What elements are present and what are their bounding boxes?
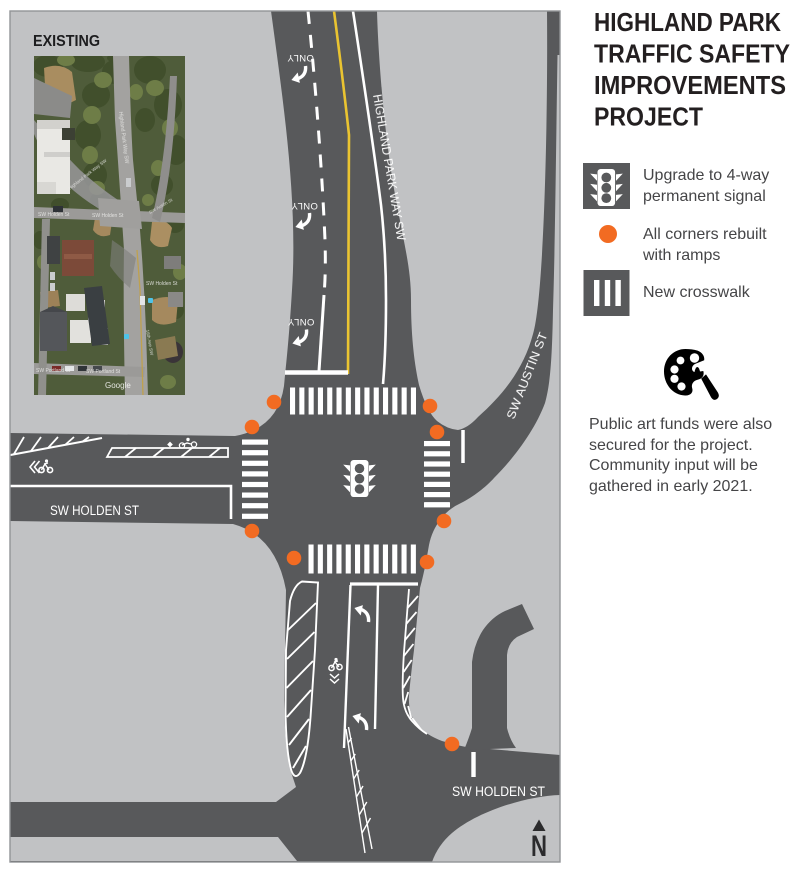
svg-text:PROJECT: PROJECT [594, 102, 703, 132]
svg-text:SW HOLDEN ST: SW HOLDEN ST [50, 503, 139, 518]
svg-text:SW Portland St: SW Portland St [36, 368, 71, 374]
svg-text:ONLY: ONLY [287, 52, 314, 63]
svg-text:Public art funds were also: Public art funds were also [589, 416, 772, 433]
svg-text:New crosswalk: New crosswalk [643, 284, 751, 301]
svg-text:permanent signal: permanent signal [643, 188, 766, 205]
svg-text:ONLY: ONLY [287, 316, 314, 327]
svg-text:gathered in early 2021.: gathered in early 2021. [589, 478, 753, 495]
svg-text:SW HOLDEN ST: SW HOLDEN ST [452, 784, 545, 799]
svg-text:Community input will be: Community input will be [589, 457, 758, 474]
svg-text:secured for the project.: secured for the project. [589, 437, 753, 454]
svg-text:SW Holden St: SW Holden St [92, 213, 124, 219]
svg-text:EXISTING: EXISTING [33, 33, 100, 50]
svg-text:All corners rebuilt: All corners rebuilt [643, 226, 767, 243]
svg-text:IMPROVEMENTS: IMPROVEMENTS [594, 70, 786, 100]
svg-text:HIGHLAND PARK: HIGHLAND PARK [594, 7, 781, 37]
svg-text:SW Holden St: SW Holden St [146, 281, 178, 287]
svg-text:SW Portland St: SW Portland St [86, 369, 121, 375]
svg-text:Upgrade to 4-way: Upgrade to 4-way [643, 167, 769, 184]
svg-text:N: N [531, 830, 547, 863]
svg-text:with ramps: with ramps [642, 247, 720, 264]
svg-text:Google: Google [105, 381, 131, 390]
svg-text:ONLY: ONLY [291, 200, 318, 211]
svg-text:TRAFFIC SAFETY: TRAFFIC SAFETY [594, 39, 790, 69]
svg-text:SW Holden St: SW Holden St [38, 212, 70, 218]
